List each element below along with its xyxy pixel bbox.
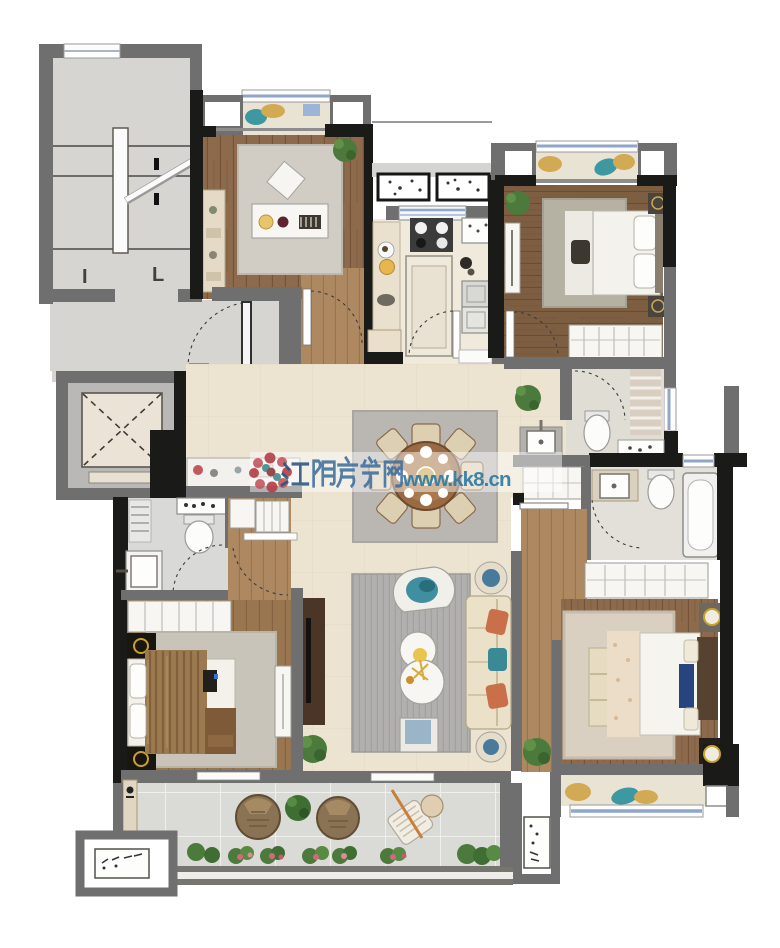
svg-text:I: I [82,266,88,288]
svg-text:L: L [152,264,164,286]
svg-text:www.kk8.cn: www.kk8.cn [402,468,511,491]
